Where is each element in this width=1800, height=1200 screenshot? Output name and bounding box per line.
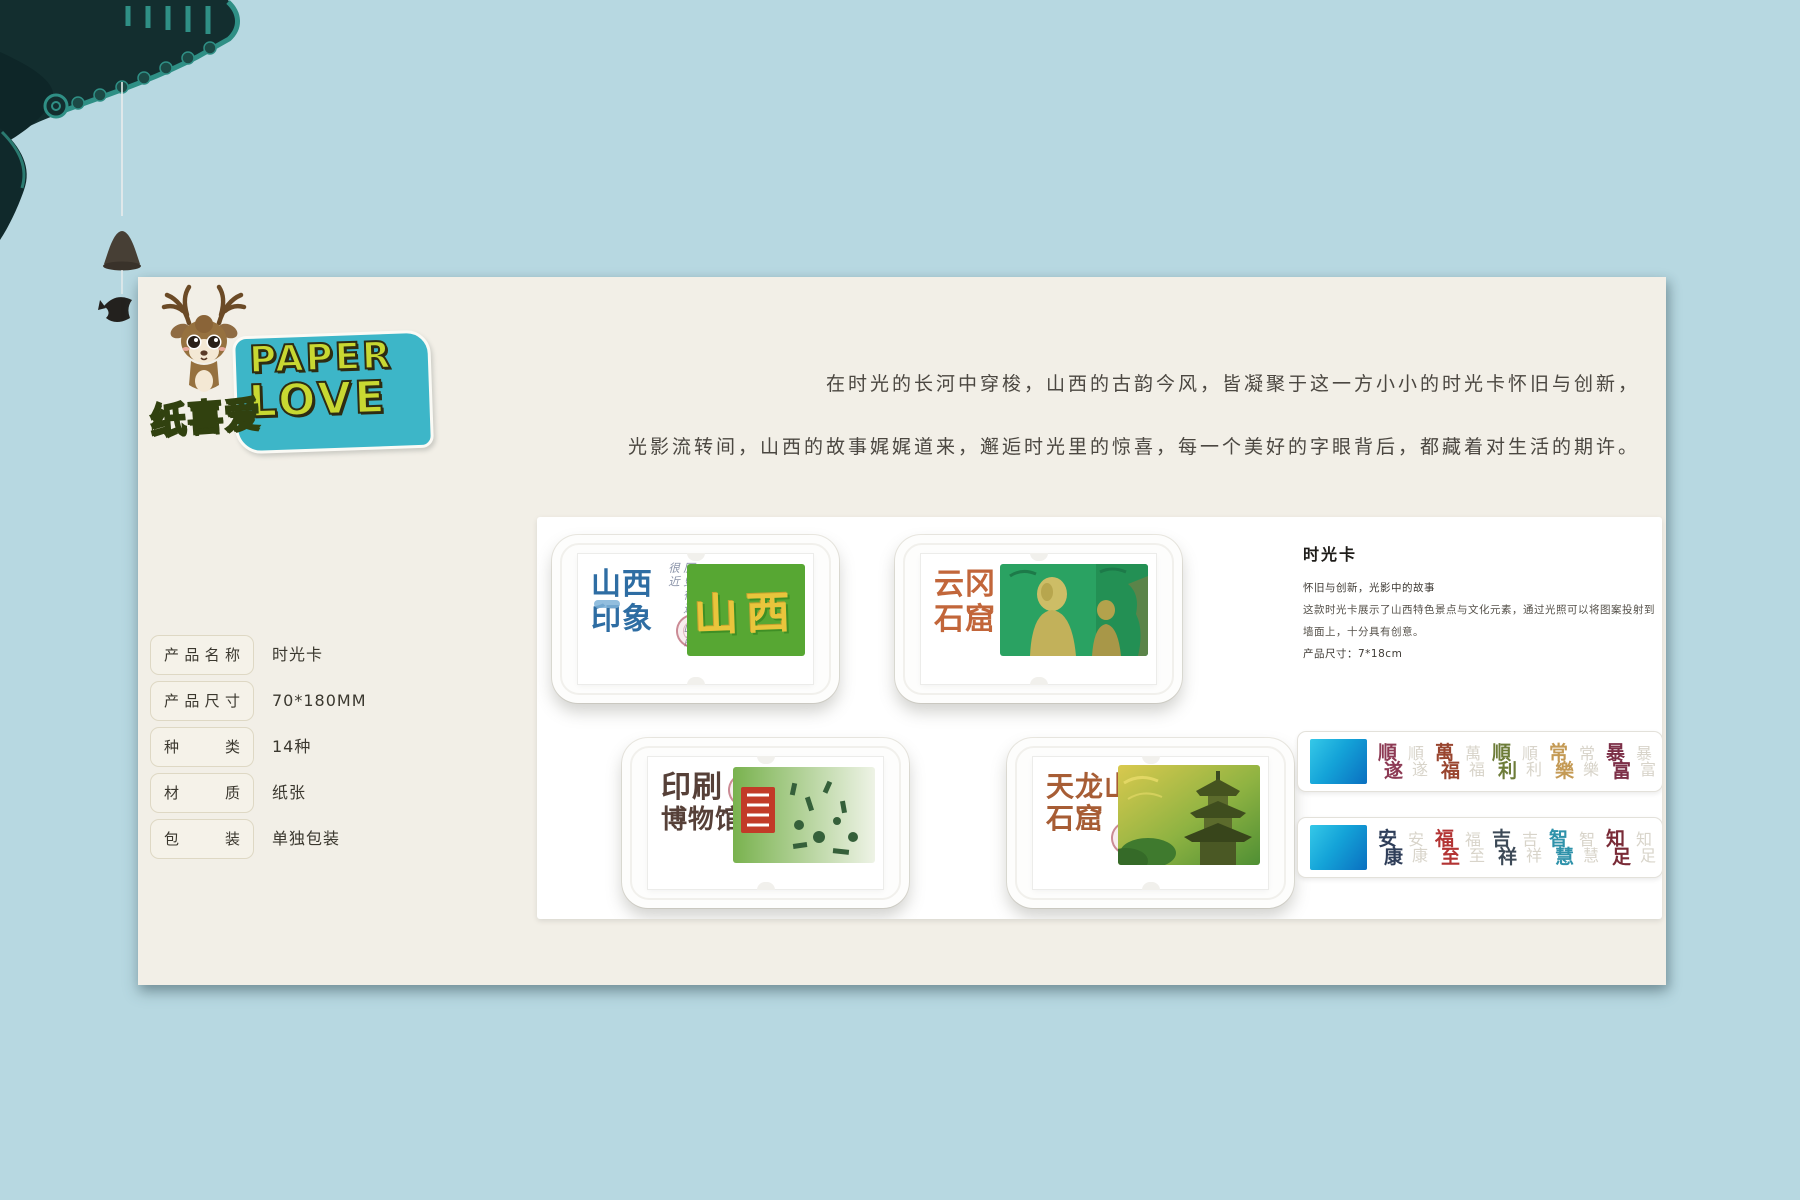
card-title: 云冈 石窟 (934, 568, 996, 637)
spec-label: 材质 (150, 773, 254, 813)
detail-line-1: 怀旧与创新，光影中的故事 (1303, 577, 1662, 599)
strip-word-ghost: 常 樂 (1579, 746, 1599, 778)
spec-value: 单独包装 (272, 819, 340, 859)
strip-word-main: 福 至 (1435, 830, 1460, 866)
notch (757, 882, 775, 890)
strip-word-main: 萬 福 (1435, 744, 1460, 780)
spec-row-material: 材质 纸张 (150, 773, 570, 813)
strip-word-ghost: 安 康 (1408, 832, 1428, 864)
strip-word: 順 利 順 利 (1492, 744, 1542, 780)
strip-words: 安 康 安 康 福 至 福 (1378, 818, 1656, 877)
strip-word: 順 遂 順 遂 (1378, 744, 1428, 780)
card-face: 山西 印象 历史很远 山西很近 山西 (578, 554, 813, 684)
spec-label: 种类 (150, 727, 254, 767)
card-art-text: 山西 (693, 576, 799, 644)
brand-name-en: PAPER LOVE (249, 337, 395, 425)
notch (1142, 882, 1160, 890)
card-title-line2: 石窟 (934, 603, 996, 638)
strip-word-ghost: 智 慧 (1579, 832, 1599, 864)
brand-logo: PAPER LOVE 纸喜爱 (138, 277, 558, 457)
notch (757, 756, 775, 764)
spec-row-size: 产品尺寸 70*180MM (150, 681, 570, 721)
spec-value: 纸张 (272, 773, 306, 813)
strip-cover-card (1310, 739, 1367, 784)
fish-pendant-icon (104, 297, 132, 322)
notch (687, 553, 705, 561)
brand-name-en-line2: LOVE (248, 376, 395, 425)
product-card-yungang-grottoes: 云冈 石窟 (895, 535, 1182, 703)
product-card-tianlongshan-grottoes: 天龙山 石窟 (1007, 738, 1294, 908)
card-title-line1: 山西 (591, 568, 653, 603)
spec-row-variety: 种类 14种 (150, 727, 570, 767)
notch (1142, 756, 1160, 764)
product-page: PAPER LOVE 纸喜爱 (0, 0, 1800, 1200)
card-image-printing (733, 767, 875, 863)
strip-word-main: 吉 祥 (1492, 830, 1517, 866)
spec-label: 产品尺寸 (150, 681, 254, 721)
detail-line-4: 产品尺寸：7*18cm (1303, 643, 1662, 665)
detail-title: 时光卡 (1303, 541, 1662, 565)
notch (1030, 677, 1048, 685)
spec-value: 70*180MM (272, 681, 367, 721)
word-card-strip-1: 順 遂 順 遂 萬 福 萬 (1297, 731, 1662, 792)
strip-word: 吉 祥 吉 祥 (1492, 830, 1542, 866)
strip-word: 萬 福 萬 福 (1435, 744, 1485, 780)
product-gallery-panel: 山西 印象 历史很远 山西很近 山西 (537, 517, 1662, 919)
pagoda-illustration (1118, 765, 1260, 865)
card-image-shanxi: 山西 (687, 564, 805, 656)
strip-word: 福 至 福 至 (1435, 830, 1485, 866)
strip-word-ghost: 順 利 (1522, 746, 1542, 778)
strip-word-main: 常 樂 (1549, 744, 1574, 780)
mini-label (594, 600, 620, 608)
intro-line-1: 在时光的长河中穿梭，山西的古韵今风，皆凝聚于这一方小小的时光卡怀旧与创新， (550, 369, 1640, 399)
intro-line-2: 光影流转间，山西的故事娓娓道来，邂逅时光里的惊喜，每一个美好的字眼背后，都藏着对… (550, 432, 1640, 462)
strip-word: 安 康 安 康 (1378, 830, 1428, 866)
card-title-line1: 云冈 (934, 568, 996, 603)
card-face: 云冈 石窟 (921, 554, 1156, 684)
strip-word-main: 智 慧 (1549, 830, 1574, 866)
strip-word-ghost: 福 至 (1465, 832, 1485, 864)
card-face: 天龙山 石窟 (1033, 757, 1268, 889)
strip-cover-card (1310, 825, 1367, 870)
intro-paragraph: 在时光的长河中穿梭，山西的古韵今风，皆凝聚于这一方小小的时光卡怀旧与创新， 光影… (550, 369, 1640, 495)
strip-word: 常 樂 常 樂 (1549, 744, 1599, 780)
spec-row-name: 产品名称 时光卡 (150, 635, 570, 675)
spec-value: 14种 (272, 727, 311, 767)
content-panel: PAPER LOVE 纸喜爱 (138, 277, 1666, 985)
card-title-line2: 博物馆 (661, 806, 742, 836)
strip-word: 智 慧 智 慧 (1549, 830, 1599, 866)
strip-word-ghost: 知 足 (1636, 832, 1656, 864)
product-card-shanxi-impression: 山西 印象 历史很远 山西很近 山西 (552, 535, 839, 703)
strip-word-main: 順 利 (1492, 744, 1517, 780)
strip-word-ghost: 萬 福 (1465, 746, 1485, 778)
strip-word-main: 知 足 (1606, 830, 1631, 866)
detail-line-2: 这款时光卡展示了山西特色景点与文化元素，通过光照可以将图案投射到 (1303, 599, 1662, 621)
card-face: 印刷 博物馆 (648, 757, 883, 889)
spec-row-packaging: 包装 单独包装 (150, 819, 570, 859)
word-card-strip-2: 安 康 安 康 福 至 福 (1297, 817, 1662, 878)
notch (687, 677, 705, 685)
strip-word-ghost: 吉 祥 (1522, 832, 1542, 864)
spec-value: 时光卡 (272, 635, 323, 675)
card-image-yungang (1000, 564, 1148, 656)
strip-word: 知 足 知 足 (1606, 830, 1656, 866)
strip-word-ghost: 順 遂 (1408, 746, 1428, 778)
deer-mascot-icon (158, 283, 250, 403)
spec-label: 包装 (150, 819, 254, 859)
product-card-printing-museum: 印刷 博物馆 (622, 738, 909, 908)
printing-illustration (733, 767, 875, 863)
strip-word: 暴 富 暴 富 (1606, 744, 1656, 780)
strip-word-main: 順 遂 (1378, 744, 1403, 780)
detail-line-3: 墙面上，十分具有创意。 (1303, 621, 1662, 643)
strip-word-main: 暴 富 (1606, 744, 1631, 780)
strip-word-main: 安 康 (1378, 830, 1403, 866)
spec-label: 产品名称 (150, 635, 254, 675)
strip-word-ghost: 暴 富 (1636, 746, 1656, 778)
notch (1030, 553, 1048, 561)
detail-block: 时光卡 怀旧与创新，光影中的故事 这款时光卡展示了山西特色景点与文化元素，通过光… (1303, 541, 1662, 665)
buddha-illustration (1000, 564, 1148, 656)
card-image-tianlongshan (1118, 765, 1260, 865)
strip-words: 順 遂 順 遂 萬 福 萬 (1378, 732, 1656, 791)
